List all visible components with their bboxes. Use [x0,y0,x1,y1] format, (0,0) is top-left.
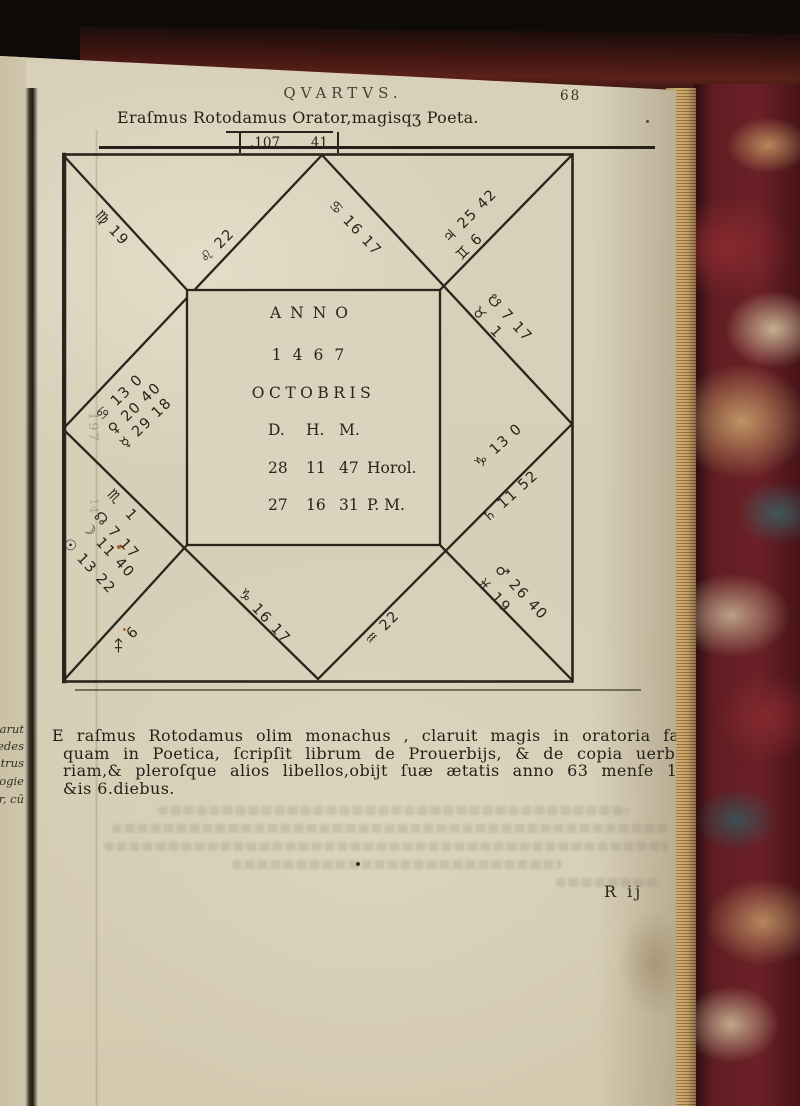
top-rule [99,146,655,149]
paragraph-line: riam,& pleroſque alios libellos,obijt ſu… [52,762,744,780]
col-header-h: H. [306,421,339,439]
figure-number-box: .107 41 [239,132,339,153]
chart-title: Eraſmus Rotodamus Orator,magisqʒ Poeta. [117,108,597,127]
chart-horol-row: 28 11 47 Horol. [268,459,416,477]
chart-anno-label: ANNO [187,304,440,322]
horol-day: 28 [268,459,306,477]
chart-col-headers: D. H. M. [268,421,367,439]
pm-minute: 31 [339,496,367,514]
facing-page-text-fragment: er, cū [0,792,24,806]
facing-page-text-fragment: narut, [0,722,24,736]
bottom-rule [75,689,641,691]
chart-pm-row: 27 16 31 P. M. [268,496,405,514]
paper-speck [646,120,649,123]
showthrough-line [158,806,628,815]
signature-mark: R ij [604,882,643,901]
pm-label: P. M. [367,496,405,514]
horol-minute: 47 [339,459,367,477]
col-header-d: D. [268,421,306,439]
horol-label: Horol. [367,459,416,477]
commentary-paragraph: E raſmus Rotodamus olim monachus , claru… [52,727,744,797]
ghost-margin-number-2: 14 [87,498,101,513]
paragraph-line: quam in Poetica, ſcripſit librum de Prou… [52,745,744,763]
figure-number-left: .107 [250,135,280,151]
showthrough-line [112,824,668,833]
horol-hour: 11 [306,459,339,477]
pm-hour: 16 [306,496,339,514]
showthrough-line [232,860,562,869]
chart-center-panel: ANNO 1467 OCTOBRIS D. H. M. 28 11 47 Hor… [187,290,440,545]
paper-speck [123,628,126,631]
facing-page-text-fragment: ogie, & [0,774,24,788]
chart-month: OCTOBRIS [187,384,440,402]
paragraph-line: E raſmus Rotodamus olim monachus , claru… [52,727,744,745]
pm-day: 27 [268,496,306,514]
chart-year: 1467 [187,346,440,364]
facing-page-text-fragment: udtrus. [0,756,24,770]
book-page: QVARTVS. 68 Eraſmus Rotodamus Orator,mag… [0,0,676,1106]
paper-speck [117,545,121,549]
col-header-m: M. [339,421,367,439]
facing-page-text-fragment: at edes [0,739,24,753]
marbled-book-edge [694,84,800,1106]
previous-page-sliver [0,56,26,1106]
figure-number-right: 41 [311,135,328,151]
paper-speck [356,862,360,866]
page-gutter-shadow [25,88,38,1106]
page-number: 68 [560,88,581,104]
showthrough-line [104,842,668,851]
ghost-margin-number: 197 [85,412,100,443]
paragraph-line: &is 6.diebus. [52,780,744,798]
running-head: QVARTVS. [238,84,448,102]
